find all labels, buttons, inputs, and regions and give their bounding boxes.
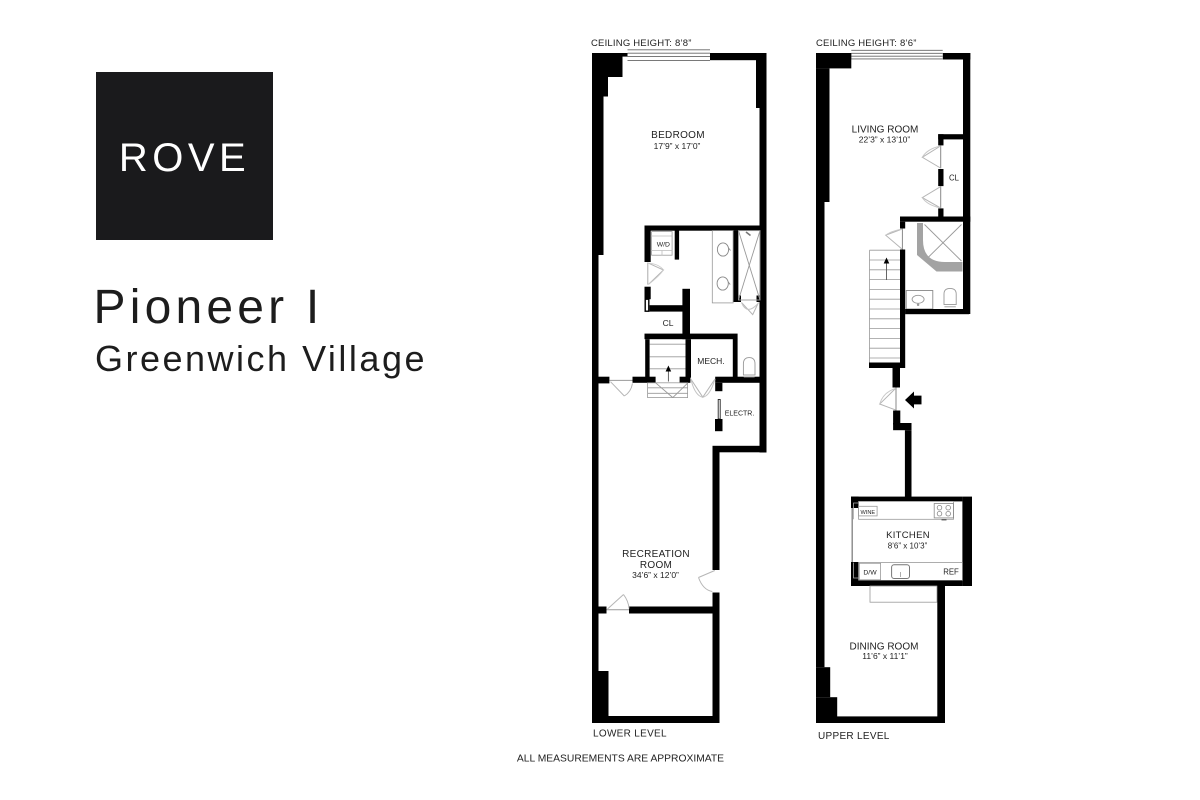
svg-text:UPPER LEVEL: UPPER LEVEL — [818, 731, 890, 742]
svg-text:CL: CL — [663, 318, 674, 328]
svg-text:8’6” x 10’3”: 8’6” x 10’3” — [888, 542, 928, 551]
svg-text:34’6” x 12’0”: 34’6” x 12’0” — [632, 570, 679, 580]
svg-text:KITCHEN: KITCHEN — [886, 530, 930, 541]
svg-text:W/D: W/D — [657, 242, 670, 249]
svg-text:LOWER LEVEL: LOWER LEVEL — [593, 729, 667, 740]
svg-text:D/W: D/W — [863, 570, 877, 577]
svg-text:RECREATION: RECREATION — [622, 549, 690, 560]
svg-text:REF: REF — [943, 568, 959, 577]
svg-text:CEILING HEIGHT: 8’6”: CEILING HEIGHT: 8’6” — [816, 38, 917, 49]
svg-text:11’6” x 11’1”: 11’6” x 11’1” — [862, 651, 908, 661]
svg-text:WINE: WINE — [860, 510, 875, 516]
svg-text:ALL MEASUREMENTS ARE APPROXIMA: ALL MEASUREMENTS ARE APPROXIMATE — [517, 754, 724, 765]
svg-text:CEILING HEIGHT: 8’8”: CEILING HEIGHT: 8’8” — [591, 38, 692, 49]
svg-text:ELECTR.: ELECTR. — [725, 410, 755, 417]
svg-text:CL: CL — [949, 174, 960, 183]
svg-text:BEDROOM: BEDROOM — [651, 130, 705, 141]
svg-text:17’9” x 17’0”: 17’9” x 17’0” — [654, 141, 701, 151]
svg-text:22’3” x 13’10”: 22’3” x 13’10” — [859, 135, 911, 145]
svg-text:MECH.: MECH. — [697, 356, 724, 366]
